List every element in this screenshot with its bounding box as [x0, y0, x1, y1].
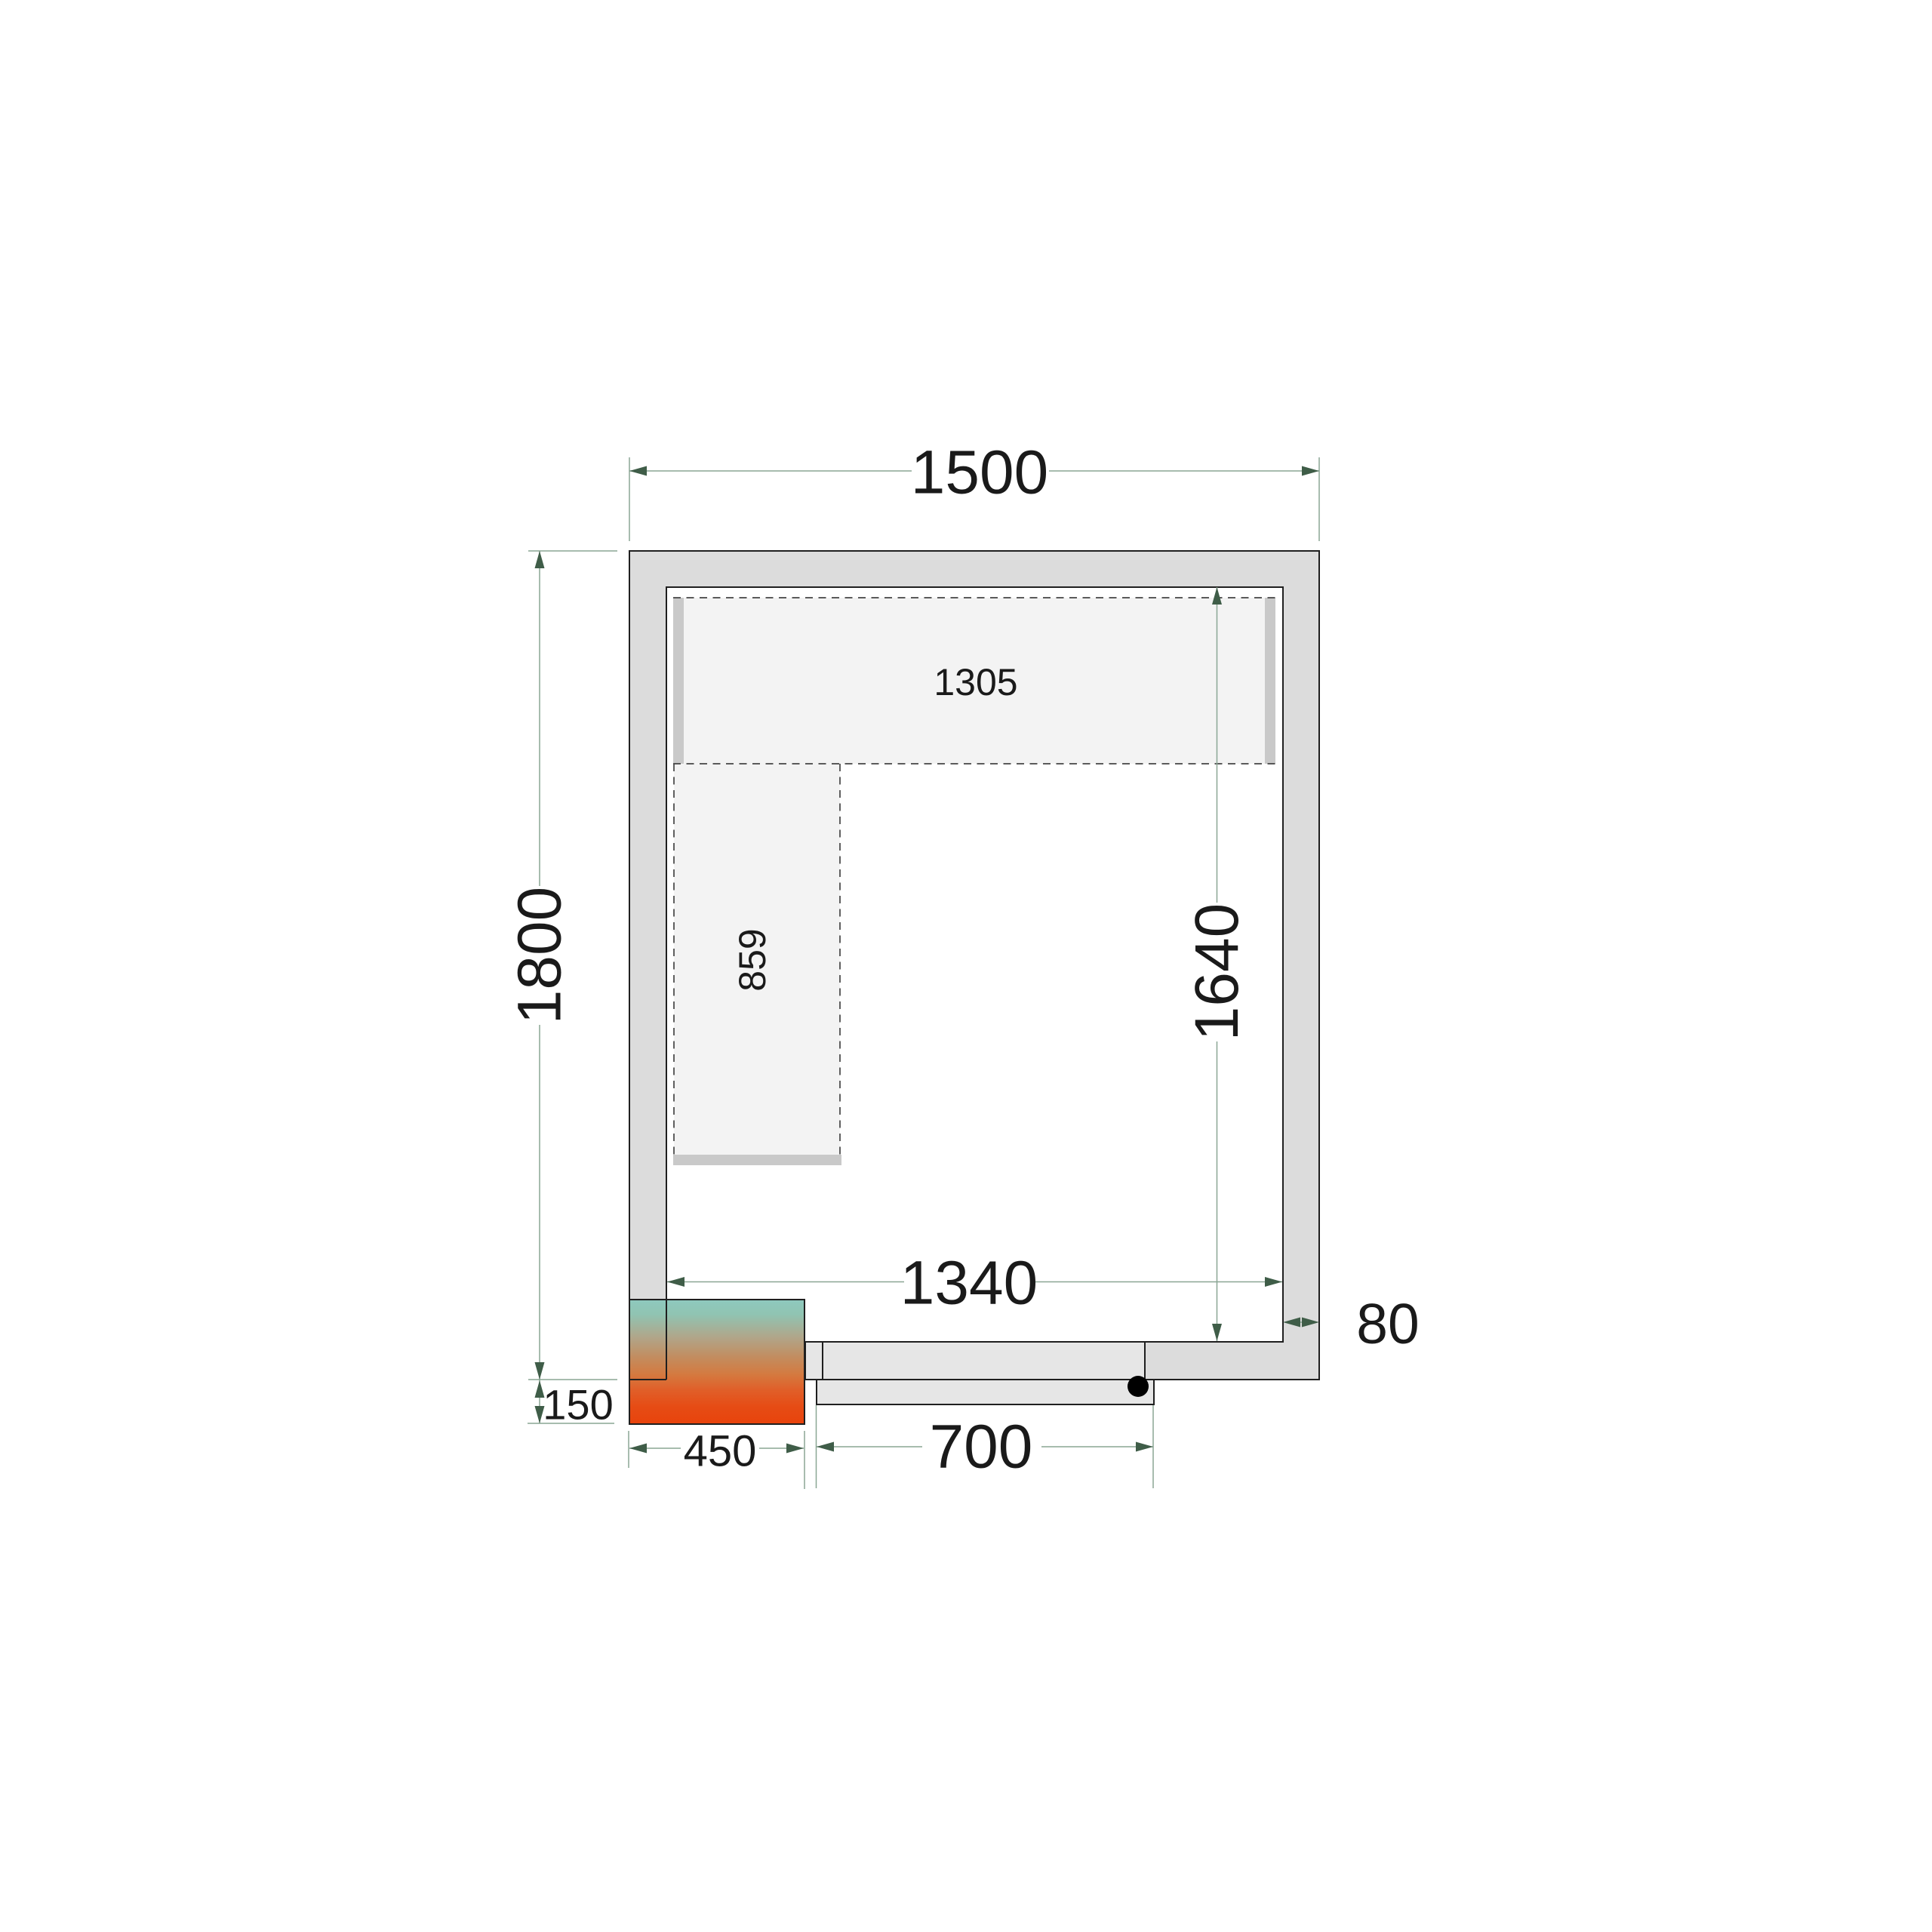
svg-text:1305: 1305	[934, 661, 1017, 703]
svg-text:1800: 1800	[506, 887, 574, 1024]
svg-text:80: 80	[1356, 1292, 1419, 1355]
svg-text:450: 450	[684, 1427, 757, 1476]
svg-text:859: 859	[731, 928, 774, 991]
svg-text:700: 700	[930, 1413, 1033, 1481]
svg-text:1340: 1340	[900, 1249, 1038, 1318]
svg-text:150: 150	[543, 1381, 613, 1429]
svg-text:1640: 1640	[1183, 903, 1251, 1041]
svg-text:1500: 1500	[911, 438, 1048, 507]
